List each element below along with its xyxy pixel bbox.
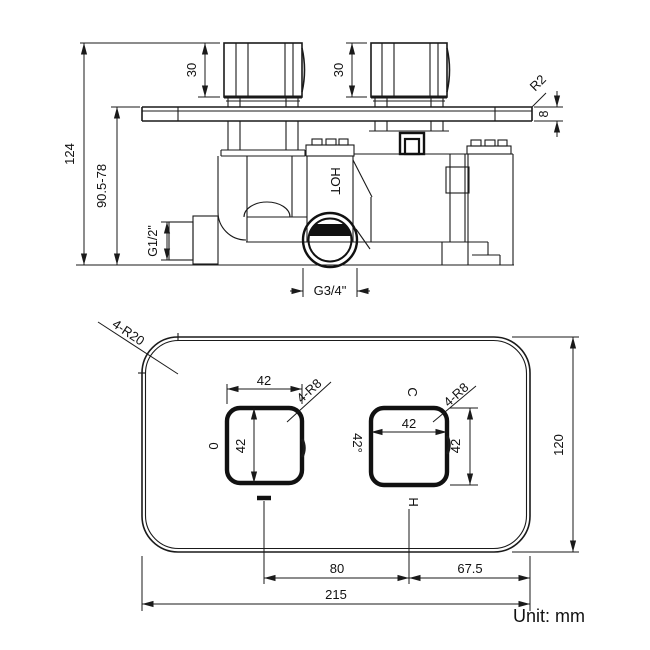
label-cold: C	[405, 387, 420, 396]
dim-left-knob-width: 42	[257, 373, 271, 388]
dim-plate-height: 120	[551, 434, 566, 456]
dim-left-knob-height: 42	[233, 439, 248, 453]
right-knob-side	[371, 43, 450, 107]
outlet-port-seal	[309, 224, 351, 236]
dim-right-knob-width: 42	[402, 416, 416, 431]
right-knob-dimensions: C 4-R8 42 42 42° H	[350, 380, 478, 584]
dim-install-depth: 90.5-78	[94, 164, 109, 208]
bottom-view-faceplate: 42 4-R8 42 0 C 4-R8 42 42 42° H	[98, 316, 579, 611]
label-angle-stop: 42°	[350, 433, 365, 453]
dome	[244, 202, 290, 217]
dim-left-knob-corner: 4-R8	[293, 376, 324, 406]
label-outlet-thread: G3/4"	[314, 283, 347, 298]
dim-right-knob-corner: 4-R8	[440, 380, 471, 410]
label-hot-front: H	[406, 497, 421, 506]
dim-plate-corner-radius: 4-R20	[110, 316, 148, 348]
dim-knob-spacing: 80	[330, 561, 344, 576]
dim-right-offset: 67.5	[457, 561, 482, 576]
unit-note: Unit: mm	[513, 606, 585, 626]
technical-drawing-page: 124 90.5-78 30 30 R2 8	[0, 0, 650, 650]
dim-knob1-height: 30	[184, 63, 199, 77]
label-left-knob-position: 0	[206, 442, 221, 449]
dim-total-height: 124	[62, 143, 77, 165]
outlet-port-ring	[303, 213, 357, 267]
label-inlet-thread: G1/2"	[146, 225, 160, 257]
dim-knob2-height: 30	[331, 63, 346, 77]
dim-plate-width: 215	[325, 587, 347, 602]
inlet-stub	[169, 222, 193, 260]
label-hot-side: HOT	[328, 167, 343, 195]
valve-technical-drawing: 124 90.5-78 30 30 R2 8	[0, 0, 650, 650]
faceplate-outline	[142, 337, 530, 552]
wall-plate-section	[142, 107, 532, 121]
dim-right-knob-height: 42	[448, 439, 463, 453]
dim-plate-edge-radius: R2	[527, 72, 549, 94]
dim-plate-thickness: 8	[537, 110, 551, 117]
left-knob-side	[224, 43, 305, 107]
top-view-side-elevation: 124 90.5-78 30 30 R2 8	[62, 43, 563, 298]
faceplate-dimensions: 4-R20 120 80 67.5 215	[98, 316, 579, 611]
